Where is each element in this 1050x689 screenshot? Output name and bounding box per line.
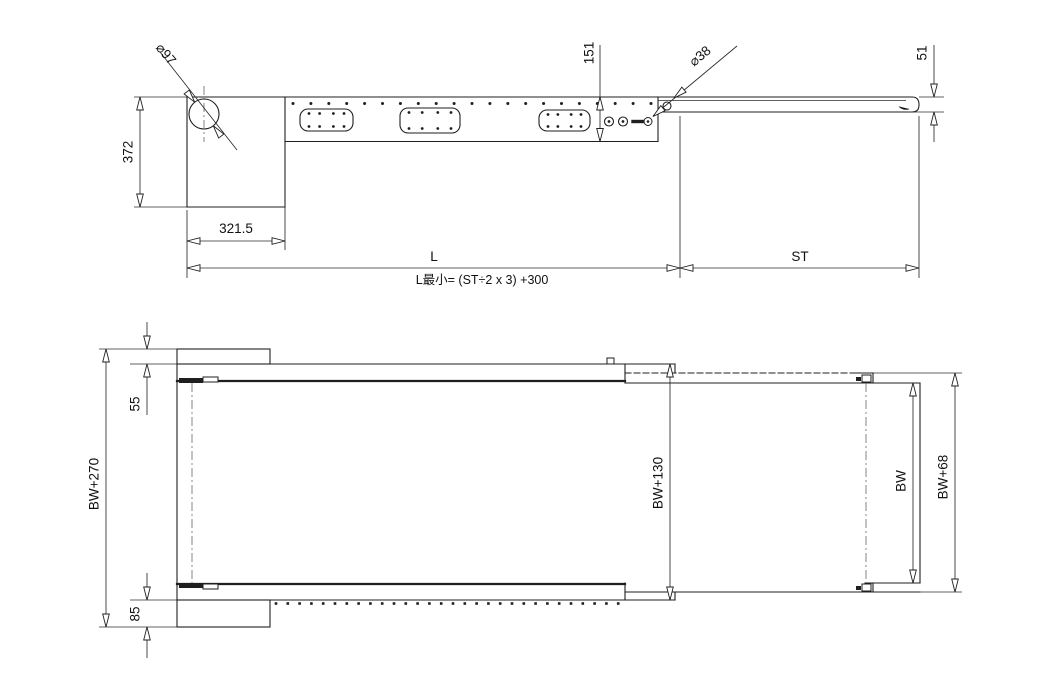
dim-pulley-diameter-label: ⌀97 (153, 40, 179, 67)
dim-length-label: L (430, 249, 438, 264)
slot-bolt-dot (421, 127, 424, 130)
bolt-dot (275, 602, 278, 605)
dimension-arrowhead (144, 627, 151, 640)
hole-dot (542, 102, 545, 105)
bolt-dot (617, 602, 620, 605)
dimension-arrowhead (910, 383, 917, 396)
bolt-dot (428, 602, 431, 605)
dimension-arrowhead (187, 238, 200, 245)
dim-belt-width-label: BW (894, 470, 909, 492)
side-view: 372 321.5 L L最小= (ST÷2 x 3) +300 ST 151 … (121, 40, 945, 287)
boom-nose (908, 97, 919, 112)
side-view-geometry (187, 86, 919, 207)
dimension-arrowhead (680, 265, 693, 272)
dimension-arrowhead (952, 373, 959, 386)
bolt-dot (381, 602, 384, 605)
dim-tail-length-label: 321.5 (219, 221, 253, 236)
slot-bolt-dot (547, 125, 550, 128)
hole-dot (327, 102, 330, 105)
dim-frame-width-label: BW+130 (651, 457, 666, 509)
dimension-arrowhead (931, 112, 938, 125)
slot-bolt-dot (408, 111, 411, 114)
dimension-arrowhead (144, 587, 151, 600)
bolt-dot (369, 602, 372, 605)
slot-bolt-dot (570, 125, 573, 128)
slot-bolt-dot (332, 112, 335, 115)
bolt-dot (464, 602, 467, 605)
bolt-dot (322, 602, 325, 605)
bolt-dot (558, 602, 561, 605)
bolt-dot (475, 602, 478, 605)
dimension-arrowhead (187, 265, 200, 272)
slot-bolt-dot (421, 111, 424, 114)
hole-dot (453, 102, 456, 105)
dimension-arrowhead (272, 238, 285, 245)
slot-bolt-dot (436, 111, 439, 114)
hole-dot (560, 102, 563, 105)
slot-bolt-dot (408, 127, 411, 130)
hole-dot (417, 102, 420, 105)
slot-bolt-dot (570, 113, 573, 116)
hole-dot (345, 102, 348, 105)
hole-dot (632, 102, 635, 105)
telescopic-conveyor-drawing: 372 321.5 L L最小= (ST÷2 x 3) +300 ST 151 … (0, 0, 1050, 689)
nose-bracket (862, 584, 871, 591)
slot-bolt-dot (343, 112, 346, 115)
dimension-arrowhead (667, 364, 674, 377)
hole-dot (309, 102, 312, 105)
bolt-dot (440, 602, 443, 605)
bolt-dot (593, 602, 596, 605)
tail-block-top (177, 349, 270, 364)
dim-overall-width-label: BW+270 (87, 458, 102, 510)
bolt-dot (334, 602, 337, 605)
hole-dot (614, 102, 617, 105)
bolt-dot (534, 602, 537, 605)
dimension-arrowhead (931, 84, 938, 97)
hole-dot (399, 102, 402, 105)
dim-boom-thickness-label: 51 (915, 45, 930, 60)
dim-bottom-offset-label: 85 (128, 606, 143, 621)
hole-dot (363, 102, 366, 105)
dimension-arrowhead (667, 265, 680, 272)
slot-bolt-dot (343, 125, 346, 128)
dim-frame-depth-label: 151 (582, 42, 597, 65)
dimension-arrowhead (137, 194, 144, 207)
hole-dot (578, 102, 581, 105)
dimension-arrowhead (103, 614, 110, 627)
bolt-dot (570, 602, 573, 605)
belt-clamp (179, 378, 203, 383)
hole-dot (488, 102, 491, 105)
slot-bolt-dot (580, 125, 583, 128)
slot-bolt-dot (450, 127, 453, 130)
slot-bolt-dot (318, 112, 321, 115)
bolt-dot (393, 602, 396, 605)
plan-view: BW+270 55 85 BW+130 BW BW+68 (87, 322, 963, 658)
bolt-dot (287, 602, 290, 605)
hole-dot (524, 102, 527, 105)
dim-roller-diameter-label: ⌀38 (686, 43, 713, 69)
slot-bolt-dot (318, 125, 321, 128)
nose-bracket (862, 375, 871, 382)
bolt-dot (310, 602, 313, 605)
slot-bolt-dot (580, 113, 583, 116)
slot-bolt-dot (450, 111, 453, 114)
min-length-formula: L最小= (ST÷2 x 3) +300 (416, 273, 549, 287)
hole-dot (506, 102, 509, 105)
bolt-dot (511, 602, 514, 605)
technical-drawing-svg: 372 321.5 L L最小= (ST÷2 x 3) +300 ST 151 … (0, 0, 1050, 689)
hole-dot (471, 102, 474, 105)
slot-bolt-dot (556, 125, 559, 128)
hole-dot (650, 102, 653, 105)
bolt-dot (523, 602, 526, 605)
side-view-dimensions (134, 45, 944, 278)
bolt-dot (487, 602, 490, 605)
bolt-dot (405, 602, 408, 605)
slot-bolt-dot (547, 113, 550, 116)
dimension-arrowhead (103, 349, 110, 362)
dim-tail-height-label: 372 (121, 141, 136, 164)
plan-view-geometry (177, 349, 920, 627)
bolt-dot (298, 602, 301, 605)
dimension-arrowhead (597, 129, 604, 142)
dimension-arrowhead (910, 570, 917, 583)
bolt-dot (582, 602, 585, 605)
dim-top-offset-label: 55 (128, 396, 143, 411)
dimension-arrowhead (144, 364, 151, 377)
plan-view-bolts (275, 602, 620, 605)
slot-bolt-dot (332, 125, 335, 128)
slot-bolt-dot (308, 112, 311, 115)
dimension-arrowhead (144, 336, 151, 349)
dimension-arrowhead (906, 265, 919, 272)
bolt-dot (452, 602, 455, 605)
hole-dot (292, 102, 295, 105)
access-slot (539, 110, 590, 131)
bolt-dot (416, 602, 419, 605)
bolt-dot (605, 602, 608, 605)
dim-stroke-label: ST (791, 249, 808, 264)
slot-bolt-dot (436, 127, 439, 130)
tail-block-bottom (177, 600, 270, 627)
bolt-dot (546, 602, 549, 605)
dim-boom-width-label: BW+68 (936, 455, 951, 500)
bolt-dot (346, 602, 349, 605)
slot-bolt-dot (308, 125, 311, 128)
hole-dot (381, 102, 384, 105)
belt-clamp (179, 583, 203, 588)
bolt-dot (357, 602, 360, 605)
plan-view-dimensions (99, 322, 962, 658)
access-slot (300, 109, 353, 131)
dimension-arrowhead (184, 90, 195, 102)
hole-dot (435, 102, 438, 105)
dimension-arrowhead (137, 97, 144, 110)
dimension-arrows (103, 84, 959, 640)
bolt-dot (499, 602, 502, 605)
dimension-arrowhead (667, 587, 674, 600)
dimension-arrowhead (952, 579, 959, 592)
dimension-arrowhead (674, 87, 686, 98)
roller (663, 102, 671, 110)
slot-bolt-dot (556, 113, 559, 116)
